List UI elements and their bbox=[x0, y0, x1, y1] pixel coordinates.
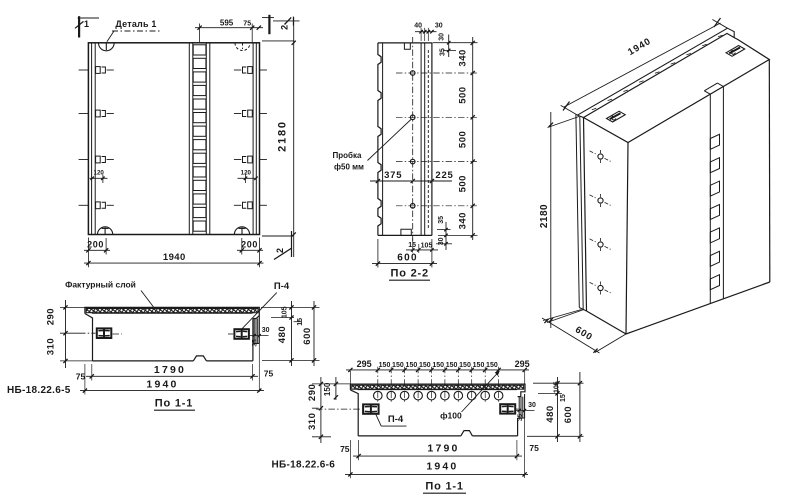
svg-text:НБ-18.22.6-6: НБ-18.22.6-6 bbox=[272, 460, 336, 471]
svg-text:150: 150 bbox=[406, 362, 418, 369]
svg-text:120: 120 bbox=[241, 169, 252, 176]
svg-text:310: 310 bbox=[46, 338, 57, 355]
svg-text:105: 105 bbox=[554, 381, 561, 393]
svg-text:30: 30 bbox=[438, 237, 445, 245]
svg-text:30: 30 bbox=[528, 402, 536, 409]
svg-text:600: 600 bbox=[302, 327, 313, 344]
svg-text:ф100: ф100 bbox=[440, 410, 462, 420]
svg-text:По 1-1: По 1-1 bbox=[425, 481, 463, 493]
svg-text:150: 150 bbox=[446, 362, 458, 369]
svg-text:По 2-2: По 2-2 bbox=[391, 268, 429, 280]
svg-text:По 1-1: По 1-1 bbox=[155, 398, 193, 410]
svg-text:340: 340 bbox=[458, 49, 469, 66]
svg-text:105: 105 bbox=[282, 306, 289, 318]
svg-text:1940: 1940 bbox=[146, 379, 178, 391]
svg-text:2180: 2180 bbox=[539, 204, 550, 228]
svg-text:Пробка: Пробка bbox=[333, 151, 362, 160]
svg-text:480: 480 bbox=[277, 326, 288, 343]
svg-text:500: 500 bbox=[458, 175, 469, 192]
svg-text:75: 75 bbox=[76, 372, 86, 382]
svg-text:500: 500 bbox=[458, 131, 469, 148]
svg-text:150: 150 bbox=[473, 362, 485, 369]
svg-text:310: 310 bbox=[307, 413, 318, 430]
svg-text:35: 35 bbox=[251, 339, 258, 347]
svg-text:35: 35 bbox=[517, 414, 524, 422]
svg-text:290: 290 bbox=[307, 384, 318, 401]
svg-text:Деталь 1: Деталь 1 bbox=[115, 19, 156, 29]
svg-text:340: 340 bbox=[458, 212, 469, 229]
svg-text:2180: 2180 bbox=[277, 120, 289, 152]
svg-text:75: 75 bbox=[264, 369, 274, 379]
svg-text:600: 600 bbox=[573, 324, 594, 343]
svg-text:2: 2 bbox=[275, 248, 285, 253]
svg-text:П-4: П-4 bbox=[274, 281, 290, 292]
svg-text:ф50 мм: ф50 мм bbox=[334, 162, 364, 171]
svg-text:295: 295 bbox=[357, 359, 372, 369]
svg-text:1790: 1790 bbox=[154, 364, 186, 376]
svg-text:150: 150 bbox=[486, 362, 498, 369]
svg-text:30: 30 bbox=[435, 23, 443, 30]
svg-text:150: 150 bbox=[392, 362, 404, 369]
svg-text:15: 15 bbox=[408, 242, 416, 249]
svg-text:150: 150 bbox=[419, 362, 431, 369]
svg-text:1: 1 bbox=[84, 19, 89, 29]
svg-text:1940: 1940 bbox=[626, 36, 653, 58]
svg-text:600: 600 bbox=[397, 252, 418, 263]
svg-text:295: 295 bbox=[515, 359, 530, 369]
svg-text:1790: 1790 bbox=[427, 443, 459, 455]
svg-text:150: 150 bbox=[379, 362, 391, 369]
svg-text:150: 150 bbox=[323, 382, 332, 396]
svg-text:75: 75 bbox=[243, 21, 251, 28]
svg-text:15: 15 bbox=[560, 394, 567, 402]
svg-text:150: 150 bbox=[459, 362, 471, 369]
svg-text:75: 75 bbox=[340, 444, 350, 454]
svg-text:500: 500 bbox=[458, 86, 469, 103]
svg-text:75: 75 bbox=[529, 443, 539, 453]
svg-text:35: 35 bbox=[438, 216, 445, 224]
svg-text:15: 15 bbox=[297, 318, 304, 326]
svg-text:Фактурный слой: Фактурный слой bbox=[65, 279, 136, 289]
svg-text:595: 595 bbox=[220, 19, 234, 28]
svg-text:105: 105 bbox=[421, 243, 433, 250]
svg-text:1940: 1940 bbox=[163, 252, 186, 263]
svg-text:200: 200 bbox=[241, 240, 258, 250]
svg-text:600: 600 bbox=[563, 406, 574, 423]
svg-text:П-4: П-4 bbox=[388, 414, 404, 425]
svg-text:1940: 1940 bbox=[426, 461, 458, 473]
svg-text:480: 480 bbox=[545, 405, 556, 422]
svg-text:150: 150 bbox=[432, 362, 444, 369]
svg-text:35: 35 bbox=[440, 48, 447, 56]
svg-text:30: 30 bbox=[438, 33, 445, 41]
svg-text:375: 375 bbox=[384, 170, 402, 181]
svg-text:2: 2 bbox=[280, 25, 290, 30]
svg-text:НБ-18.22.6-5: НБ-18.22.6-5 bbox=[7, 385, 71, 396]
svg-text:200: 200 bbox=[87, 240, 104, 250]
svg-text:290: 290 bbox=[46, 308, 57, 325]
svg-text:30: 30 bbox=[262, 327, 270, 334]
svg-text:225: 225 bbox=[435, 170, 453, 181]
